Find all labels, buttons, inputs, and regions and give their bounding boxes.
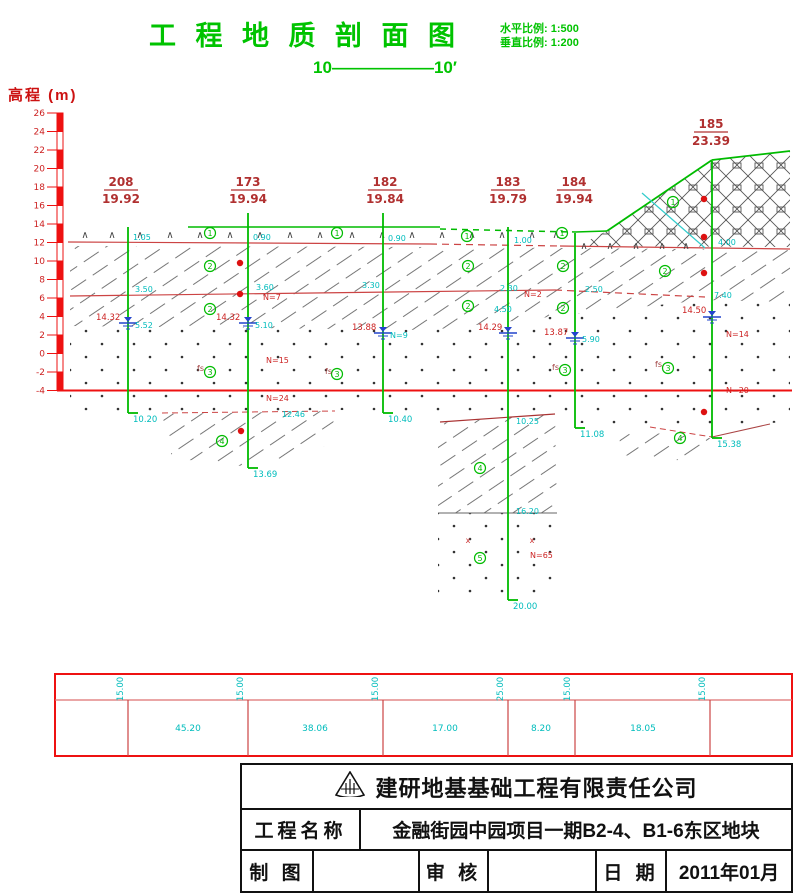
fill-caret-symbol: ∧	[438, 230, 445, 241]
axis-tick-label: 20	[34, 165, 46, 175]
axis-tick-label: 12	[34, 239, 45, 249]
sample-dot	[701, 409, 707, 415]
borehole-number-label: 185	[698, 117, 723, 131]
borehole-number-label: 184	[561, 175, 586, 189]
axis-scale-bar-segment	[57, 113, 63, 132]
borehole-station-value: 15.00	[371, 677, 381, 701]
title-block-sign-row: 制 图 审 核 日 期 2011年01月	[242, 851, 791, 891]
depth-annotation: N=20	[726, 386, 749, 395]
depth-annotation: 3.50	[135, 285, 153, 294]
borehole-number-label: 183	[495, 175, 520, 189]
water-level-label: 13.88	[352, 323, 376, 333]
water-depth-label: 5.52	[135, 321, 153, 330]
drafter-value	[314, 851, 420, 891]
depth-annotation: 1.00	[514, 236, 532, 245]
depth-annotation: 4.50	[494, 305, 512, 314]
borehole-number-label: 208	[108, 175, 133, 189]
fill-caret-symbol: ∧	[196, 230, 203, 241]
water-depth-label: 5.10	[255, 321, 273, 330]
water-level-label: 13.87	[544, 328, 568, 338]
stratum-number: 4	[219, 437, 224, 446]
stratum-number: 2	[207, 262, 212, 271]
depth-annotation: N=14	[726, 330, 749, 339]
axis-tick-label: 10	[34, 257, 46, 267]
fill-caret-symbol: ∧	[226, 230, 233, 241]
axis-tick-label: 26	[34, 109, 46, 119]
stratum-number: 4	[477, 464, 482, 473]
borehole-elevation-label: 19.94	[555, 192, 593, 206]
borehole-depth-label: 13.69	[253, 470, 277, 480]
stratum-number: 2	[465, 302, 470, 311]
stratum-number: 1	[334, 229, 339, 238]
stratum-number: 1	[464, 232, 469, 241]
sample-dot	[701, 270, 707, 276]
borehole-station-value: 15.00	[698, 677, 708, 701]
stratum-number: 2	[662, 267, 667, 276]
depth-annotation: 10.25	[516, 417, 539, 426]
sample-dot	[701, 196, 707, 202]
borehole-depth-label: 10.20	[133, 415, 157, 425]
axis-scale-bar-segment	[57, 224, 63, 243]
date-value: 2011年01月	[667, 851, 791, 891]
depth-annotation: N=65	[530, 551, 553, 560]
depth-annotation: 12.46	[282, 410, 305, 419]
borehole-spacing-value: 18.05	[630, 724, 656, 734]
stratum-number: 3	[562, 366, 567, 375]
project-name-label: 工程名称	[242, 810, 361, 849]
axis-scale-bar-segment	[57, 243, 63, 262]
borehole-depth-label: 10.40	[388, 415, 412, 425]
sample-dot	[701, 234, 707, 240]
depth-annotation: 16.20	[516, 507, 539, 516]
axis-scale-bar-segment	[57, 169, 63, 188]
fill-caret-symbol: ∧	[580, 241, 587, 252]
fill-caret-symbol: ∧	[606, 241, 613, 252]
axis-scale-bar-segment	[57, 261, 63, 280]
depth-annotation: fs	[552, 363, 559, 372]
stratum-number: 1	[670, 198, 675, 207]
depth-annotation: 0.90	[253, 233, 271, 242]
sample-dot	[238, 428, 244, 434]
borehole-spacing-value: 8.20	[531, 724, 551, 734]
company-name: 建研地基基础工程有限责任公司	[375, 771, 697, 803]
borehole-depth-label: 20.00	[513, 602, 537, 612]
depth-annotation: fs	[197, 364, 204, 373]
borehole-station-value: 15.00	[236, 677, 246, 701]
borehole-elevation-label: 19.94	[229, 192, 267, 206]
x-mark: x	[466, 536, 471, 545]
axis-scale-bar-segment	[57, 187, 63, 206]
depth-annotation: 4.00	[718, 238, 736, 247]
depth-annotation: 1.05	[133, 233, 151, 242]
fill-caret-symbol: ∧	[658, 241, 665, 252]
borehole-elevation-label: 19.84	[366, 192, 404, 206]
borehole-depth-label: 11.08	[580, 430, 604, 440]
x-mark: x	[530, 536, 535, 545]
axis-tick-label: 24	[34, 128, 46, 138]
axis-scale-bar-segment	[57, 354, 63, 373]
axis-tick-label: 0	[39, 350, 45, 360]
reviewer-label: 审 核	[420, 851, 489, 891]
layer-boundary-line	[575, 231, 607, 232]
axis-tick-label: 8	[39, 276, 45, 286]
project-name-value: 金融街园中园项目一期B2-4、B1-6东区地块	[361, 810, 791, 849]
layer-boundary-line	[68, 242, 430, 244]
axis-tick-label: 6	[39, 294, 45, 304]
layer-boundary-line	[430, 244, 560, 246]
fill-caret-symbol: ∧	[378, 230, 385, 241]
fill-caret-symbol: ∧	[408, 230, 415, 241]
sample-dot	[237, 260, 243, 266]
stratum-number: 1	[207, 229, 212, 238]
stratum-number: 2	[207, 305, 212, 314]
water-level-label: 14.50	[682, 306, 706, 316]
company-logo-icon	[335, 771, 365, 802]
borehole-station-value: 15.00	[116, 677, 126, 701]
axis-scale-bar-segment	[57, 372, 63, 391]
geological-profile-drawing: 26242220181614121086420-2-4∧∧∧∧∧∧∧∧∧∧∧∧∧…	[0, 0, 800, 896]
axis-tick-label: 2	[39, 331, 45, 341]
borehole-depth-label: 15.38	[717, 440, 741, 450]
stratum-number: 3	[334, 370, 339, 379]
axis-scale-bar-segment	[57, 280, 63, 299]
depth-annotation: 3.60	[256, 283, 274, 292]
sample-dot	[237, 291, 243, 297]
borehole-number-label: 182	[372, 175, 397, 189]
fill-caret-symbol: ∧	[632, 241, 639, 252]
title-block-project-row: 工程名称 金融街园中园项目一期B2-4、B1-6东区地块	[242, 810, 791, 851]
borehole-elevation-label: 19.92	[102, 192, 140, 206]
fill-caret-symbol: ∧	[316, 230, 323, 241]
stratum-number: 3	[207, 368, 212, 377]
stratum-number: 3	[665, 364, 670, 373]
fill-caret-symbol: ∧	[348, 230, 355, 241]
axis-tick-label: 22	[34, 146, 45, 156]
borehole-station-value: 15.00	[563, 677, 573, 701]
fill-caret-symbol: ∧	[108, 230, 115, 241]
soil-layer-region	[438, 414, 557, 513]
depth-annotation: 3.30	[362, 281, 380, 290]
stratum-number: 2	[560, 304, 565, 313]
axis-tick-label: -4	[36, 387, 45, 397]
layer-boundary-line	[712, 424, 770, 437]
soil-layer-region	[618, 430, 710, 462]
axis-scale-bar-segment	[57, 298, 63, 317]
depth-annotation: N=7	[263, 293, 281, 302]
water-depth-label: N=9	[390, 331, 408, 340]
borehole-spacing-value: 17.00	[432, 724, 458, 734]
soil-layer-region	[577, 151, 790, 247]
geological-profile-sheet: { "title": { "text": "工 程 地 质 剖 面 图", "s…	[0, 0, 800, 896]
fill-caret-symbol: ∧	[81, 230, 88, 241]
water-level-label: 14.32	[216, 313, 240, 323]
depth-annotation: N=15	[266, 356, 289, 365]
axis-tick-label: 4	[39, 313, 45, 323]
depth-annotation: 7.40	[714, 291, 732, 300]
distance-table-border	[55, 674, 792, 756]
borehole-spacing-value: 45.20	[175, 724, 201, 734]
depth-annotation: fs	[325, 367, 332, 376]
axis-scale-bar-segment	[57, 335, 63, 354]
depth-annotation: N=24	[266, 394, 289, 403]
borehole-spacing-value: 38.06	[302, 724, 328, 734]
stratum-number: 2	[465, 262, 470, 271]
axis-tick-label: 14	[34, 220, 46, 230]
title-block: 建研地基基础工程有限责任公司 工程名称 金融街园中园项目一期B2-4、B1-6东…	[240, 763, 793, 893]
fill-caret-symbol: ∧	[682, 241, 689, 252]
axis-scale-bar-segment	[57, 132, 63, 151]
axis-tick-label: 18	[34, 183, 46, 193]
fill-caret-symbol: ∧	[166, 230, 173, 241]
axis-scale-bar-segment	[57, 206, 63, 225]
fill-caret-symbol: ∧	[498, 230, 505, 241]
fill-caret-symbol: ∧	[286, 230, 293, 241]
stratum-number: 1	[559, 229, 564, 238]
stratum-number: 2	[560, 262, 565, 271]
water-depth-label: 5.90	[582, 335, 600, 344]
depth-annotation: 0.90	[388, 234, 406, 243]
water-level-label: 14.29	[478, 323, 502, 333]
stratum-number: 4	[677, 434, 682, 443]
axis-scale-bar-segment	[57, 317, 63, 336]
drafter-label: 制 图	[242, 851, 314, 891]
depth-annotation: N=2	[524, 290, 542, 299]
borehole-station-value: 25.00	[496, 677, 506, 701]
borehole-number-label: 173	[235, 175, 260, 189]
reviewer-value	[489, 851, 597, 891]
axis-tick-label: 16	[34, 202, 46, 212]
axis-tick-label: -2	[36, 368, 45, 378]
stratum-number: 5	[477, 554, 482, 563]
depth-annotation: 2.50	[585, 285, 603, 294]
depth-annotation: fs	[655, 360, 662, 369]
borehole-elevation-label: 19.79	[489, 192, 527, 206]
borehole-elevation-label: 23.39	[692, 134, 730, 148]
axis-scale-bar-segment	[57, 150, 63, 169]
title-block-company-row: 建研地基基础工程有限责任公司	[242, 765, 791, 810]
water-level-label: 14.32	[96, 313, 120, 323]
depth-annotation: 2.30	[500, 284, 518, 293]
date-label: 日 期	[597, 851, 667, 891]
